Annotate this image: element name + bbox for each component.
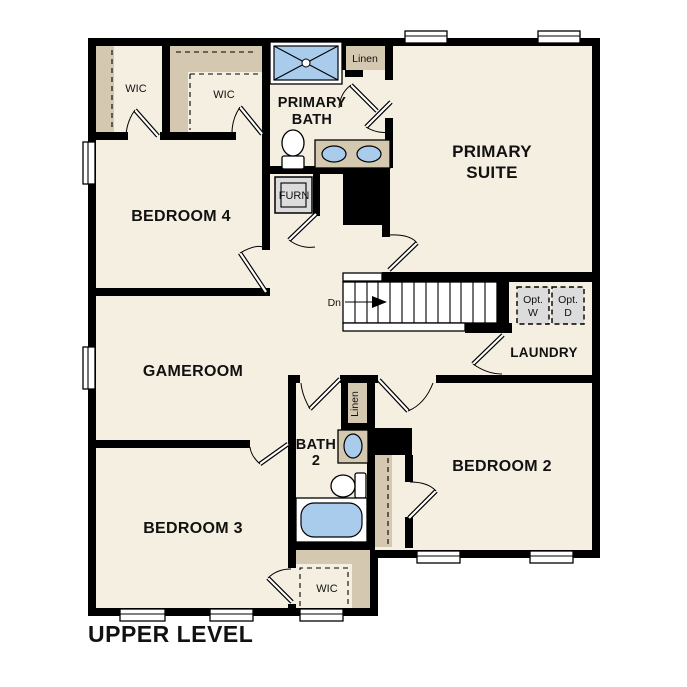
sink-symbol (322, 146, 346, 162)
wall-segment (313, 174, 320, 216)
stair-rail-top (343, 273, 382, 281)
label-primary-suite-1: PRIMARY (452, 142, 532, 161)
label-bedroom2: BEDROOM 2 (452, 458, 552, 475)
bath2-vanity (338, 430, 368, 463)
window (120, 609, 165, 621)
wall-segment (88, 440, 250, 448)
page-title: UPPER LEVEL (88, 621, 253, 647)
label-bedroom3: BEDROOM 3 (143, 520, 243, 537)
wall-segment (262, 38, 270, 250)
wall-segment (405, 517, 413, 548)
primary-bath-toilet-symbol (282, 130, 304, 169)
wall-segment (345, 70, 363, 77)
wall-segment (341, 383, 348, 430)
wall-segment (288, 375, 296, 568)
label-furnace: FURN (279, 190, 310, 202)
wall-segment (382, 272, 592, 282)
label-linen-top: Linen (352, 53, 378, 65)
wic-top-left-shelf (96, 46, 114, 132)
label-opt-dryer-2: D (564, 307, 572, 319)
primary-bath-vanity (315, 140, 390, 168)
staircase: Dn (328, 273, 497, 331)
window (210, 609, 253, 621)
label-wic-top-left: WIC (125, 83, 146, 95)
label-wic-top-middle: WIC (213, 89, 234, 101)
stair-rail-bottom (343, 323, 465, 331)
label-gameroom: GAMEROOM (143, 363, 243, 380)
wic-top-middle-shelf-top (170, 46, 262, 72)
wall-segment (370, 550, 378, 616)
label-laundry: LAUNDRY (510, 345, 578, 360)
chase (343, 168, 390, 225)
wall-segment (162, 38, 170, 140)
wall-segment (367, 383, 375, 550)
bedroom2-closet (375, 455, 392, 547)
wall-segment (385, 38, 393, 80)
wall-segment (288, 604, 296, 616)
floor-plan-page: Dn (0, 0, 687, 687)
wall-segment (88, 288, 270, 296)
label-bath2-2: 2 (312, 453, 320, 469)
sink-symbol (344, 434, 362, 458)
wall-segment (341, 423, 368, 430)
stairs-direction-label: Dn (328, 297, 342, 309)
wall-segment (288, 542, 375, 550)
wall-segment (592, 38, 600, 558)
label-opt-washer-2: W (528, 307, 538, 319)
wic-bottom-shelf-top (296, 550, 370, 564)
wall-segment (382, 225, 390, 237)
window (83, 142, 95, 184)
wall-segment (405, 455, 413, 482)
floor-plan: Dn (0, 0, 687, 687)
bath2-toilet-symbol (331, 473, 366, 498)
wic-bottom-shelf-right (352, 564, 370, 608)
shower-symbol (270, 42, 342, 84)
chase (373, 428, 412, 455)
label-primary-suite-2: SUITE (466, 163, 518, 182)
sink-symbol (357, 146, 381, 162)
label-primary-bath-1: PRIMARY (278, 95, 346, 111)
wall-segment (465, 323, 512, 333)
bathtub-symbol (296, 498, 367, 542)
label-primary-bath-2: BATH (292, 112, 332, 128)
window (538, 31, 580, 43)
label-wic-bottom: WIC (316, 583, 337, 595)
label-bedroom4: BEDROOM 4 (131, 208, 231, 225)
wall-segment (88, 132, 128, 140)
label-opt-dryer-1: Opt. (558, 294, 578, 306)
wic-top-middle-shelf-left (170, 72, 188, 132)
window (530, 551, 573, 563)
window (300, 609, 343, 621)
window (417, 551, 460, 563)
window (83, 347, 95, 389)
wall-segment (88, 38, 96, 616)
wall-segment (436, 375, 592, 383)
label-linen-middle: Linen (349, 391, 361, 417)
label-bath2-1: BATH (296, 437, 336, 453)
wall-segment (340, 375, 378, 383)
wall-segment (160, 132, 236, 140)
label-opt-washer-1: Opt. (523, 294, 543, 306)
window (405, 31, 447, 43)
